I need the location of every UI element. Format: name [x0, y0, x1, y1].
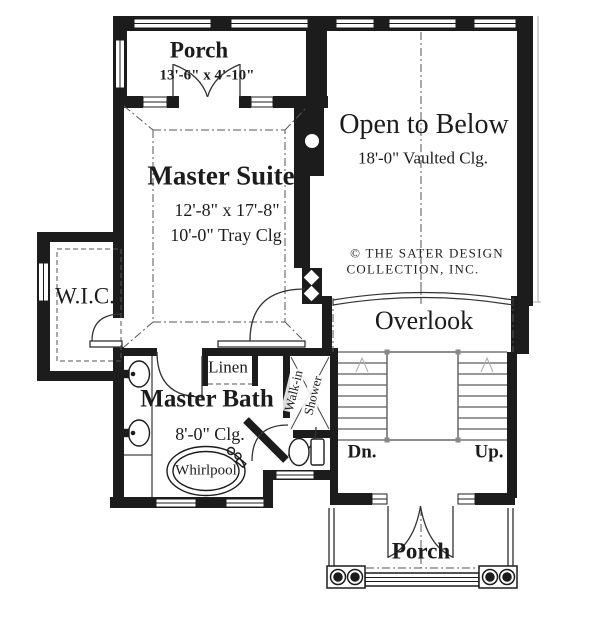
floor-plan-drawing: [0, 0, 600, 621]
room-ceiling-master-suite: 10'-0" Tray Clg: [170, 226, 282, 244]
room-label-wic: W.I.C.: [55, 285, 115, 308]
room-label-open-to-below: Open to Below: [339, 111, 509, 139]
room-label-linen: Linen: [208, 359, 248, 376]
copyright-line-1: © THE SATER DESIGN: [350, 247, 504, 260]
porch-railing: [365, 573, 479, 586]
overlook-arch: [333, 293, 513, 306]
room-ceiling-master-bath: 8'-0" Clg.: [175, 425, 245, 443]
room-label-porch-top: Porch: [170, 39, 228, 62]
floor-plan: Porch 13'-6" x 4'-10" Master Suite 12'-8…: [0, 0, 600, 621]
stairs-label-up: Up.: [474, 443, 503, 462]
room-dims-porch-top: 13'-6" x 4'-10": [160, 69, 255, 84]
stair-arrow-down: [356, 358, 368, 372]
fixture-label-whirlpool: Whirlpool: [175, 464, 237, 479]
stairs: [338, 350, 507, 443]
room-dims-master-suite: 12'-8" x 17'-8": [174, 201, 279, 219]
room-ceiling-open-to-below: 18'-0" Vaulted Clg.: [358, 150, 488, 167]
room-label-master-suite: Master Suite: [147, 163, 294, 190]
room-label-porch-bottom: Porch: [392, 540, 450, 563]
copyright-line-2: COLLECTION, INC.: [347, 263, 480, 276]
room-label-overlook: Overlook: [375, 308, 473, 334]
toilet-icon: [289, 439, 324, 466]
room-label-master-bath: Master Bath: [140, 387, 274, 412]
stair-arrow-up: [481, 358, 493, 372]
roof-lines: [533, 16, 541, 302]
stairs-label-down: Dn.: [347, 443, 376, 462]
